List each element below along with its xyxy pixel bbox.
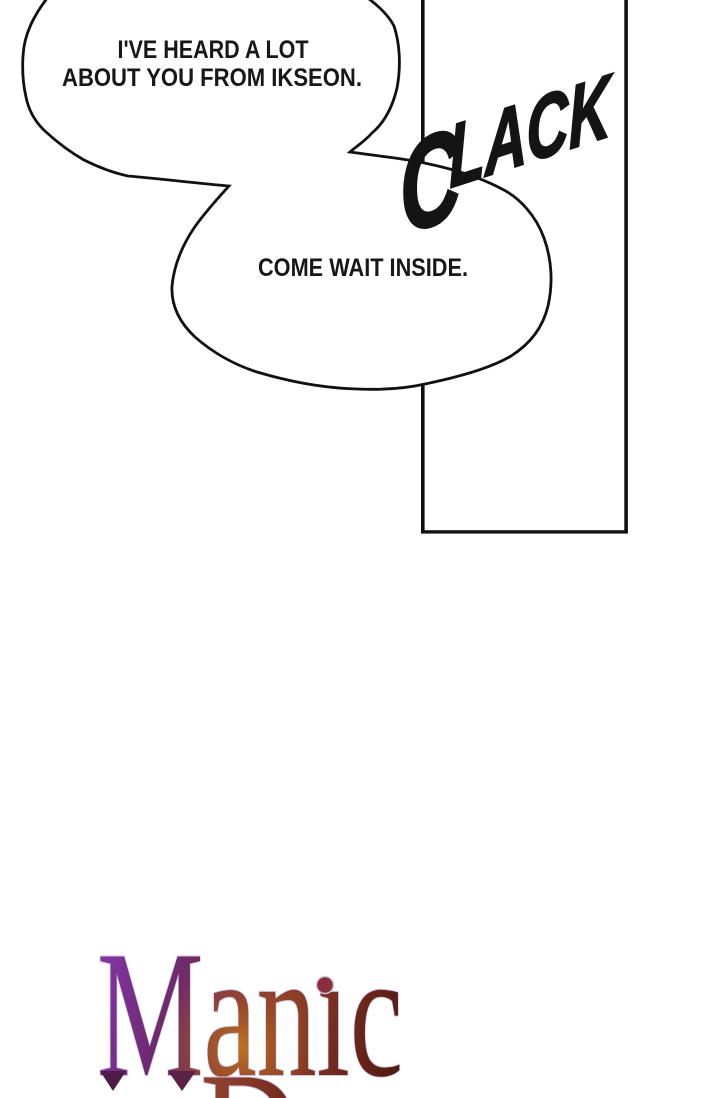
svg-text:LACK: LACK [447, 55, 616, 208]
svg-text:ABOUT YOU FROM IKSEON.: ABOUT YOU FROM IKSEON. [62, 64, 362, 92]
svg-text:COME WAIT INSIDE.: COME WAIT INSIDE. [258, 254, 468, 282]
svg-text:D: D [200, 1036, 300, 1098]
svg-text:I'VE HEARD A LOT: I'VE HEARD A LOT [118, 36, 309, 64]
